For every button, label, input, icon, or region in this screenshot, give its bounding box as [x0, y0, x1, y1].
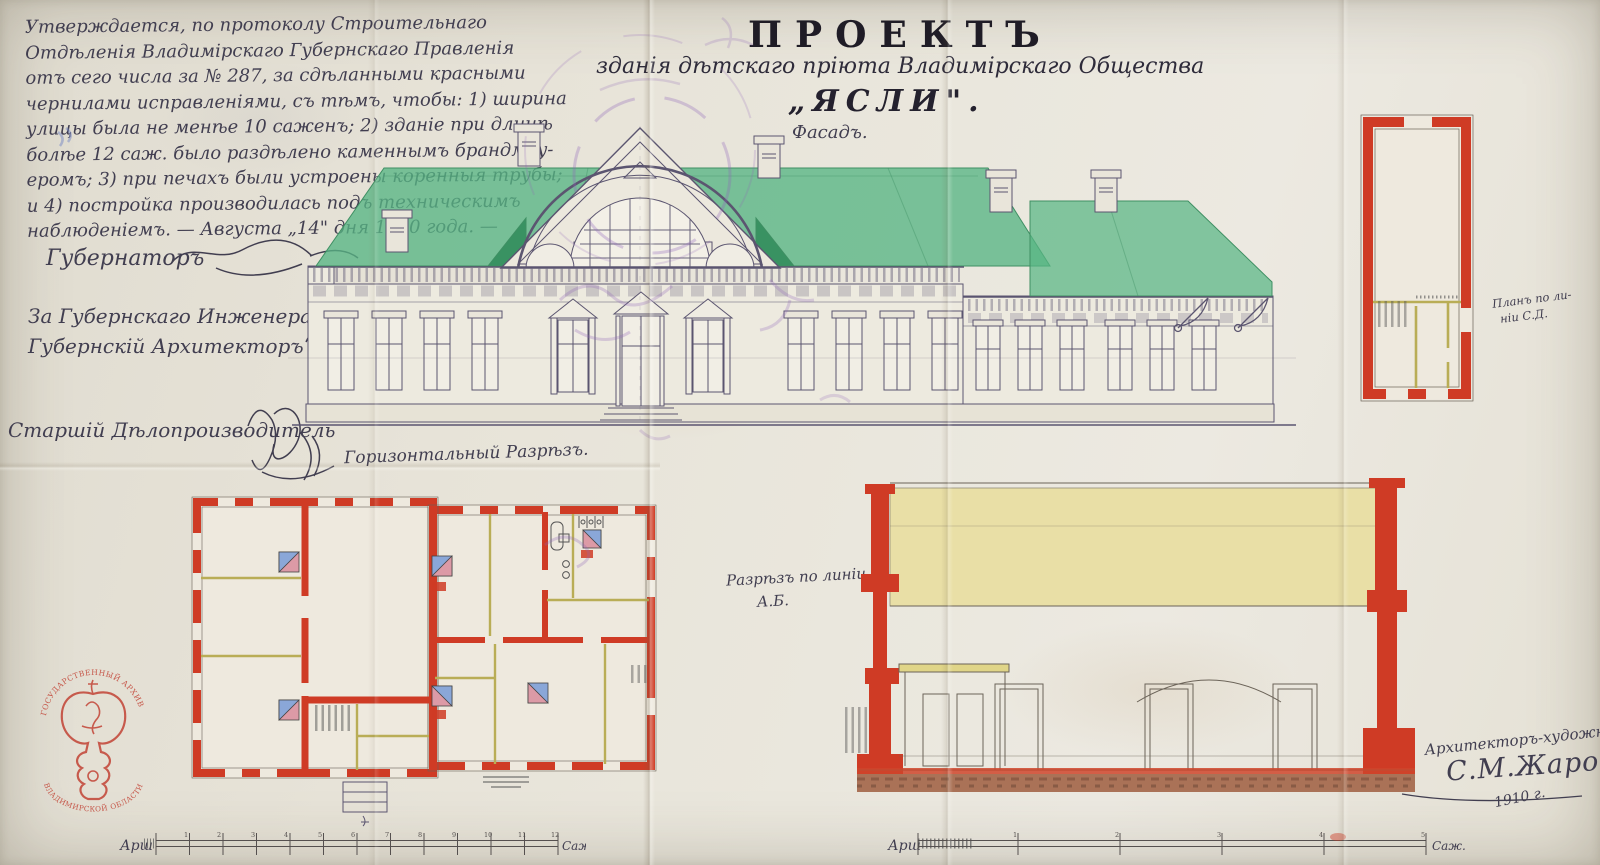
- scale-tick: 9: [452, 831, 456, 839]
- scale-bar-left: Арш 1 2 3 4 5 6 7 8 9 10 11 12 Саж.: [118, 828, 586, 862]
- stamp-arc-bottom: ВЛАДИМИРСКОЙ ОБЛАСТИ: [42, 782, 145, 814]
- section-label-2: А.Б.: [757, 591, 790, 611]
- svg-text:ВЛАДИМИРСКОЙ ОБЛАСТИ: ВЛАДИМИРСКОЙ ОБЛАСТИ: [42, 782, 145, 814]
- scale-left-end-label: Саж.: [562, 839, 586, 853]
- scale-right-start-label: Арш: [887, 838, 921, 854]
- scale-tick: 3: [1217, 831, 1221, 839]
- section-drawing: [845, 468, 1420, 800]
- scale-tick: 12: [551, 831, 559, 839]
- small-plan-drawing: [1352, 110, 1482, 408]
- project-subtitle: зданія дѣтскаго пріюта Владимірскаго Общ…: [596, 54, 1204, 79]
- floor-plan-drawing: [185, 478, 665, 790]
- floor-plan-label: Горизонтальный Разрѣзъ.: [344, 440, 589, 469]
- scale-tick: 6: [351, 831, 355, 839]
- scale-tick: 4: [1319, 831, 1323, 839]
- engineer-title-label: Губернскій Архитекторъ: [28, 334, 304, 358]
- scale-bar-right: Арш 1 2 3 4 5 Саж.: [886, 828, 1476, 862]
- scale-tick: 1: [184, 831, 188, 839]
- scale-tick: 2: [1115, 831, 1119, 839]
- scale-tick: 7: [385, 831, 389, 839]
- scale-right-end-label: Саж.: [1432, 839, 1466, 853]
- scale-tick: 11: [518, 831, 526, 839]
- engineer-for-label: За Губернскаго Инженера,: [28, 304, 318, 328]
- project-title: ПРОЕКТЪ: [748, 14, 1053, 56]
- scale-tick: 3: [251, 831, 255, 839]
- archive-stamp: ГОСУДАРСТВЕННЫЙ АРХИВ ВЛАДИМИРСКОЙ ОБЛАС…: [36, 636, 151, 824]
- scale-tick: 5: [1421, 831, 1425, 839]
- scale-tick: 8: [418, 831, 422, 839]
- scale-tick: 5: [318, 831, 322, 839]
- scale-tick: 2: [217, 831, 221, 839]
- stamp-emblem: [62, 680, 125, 799]
- detail-sketch: [335, 780, 405, 828]
- drawing-sheet: Утверждается, по протоколу Строительнаго…: [0, 0, 1600, 865]
- scale-tick: 4: [284, 831, 288, 839]
- scale-tick: 1: [1013, 831, 1017, 839]
- scale-tick: 10: [484, 831, 492, 839]
- facade-elevation-drawing: [288, 106, 1300, 430]
